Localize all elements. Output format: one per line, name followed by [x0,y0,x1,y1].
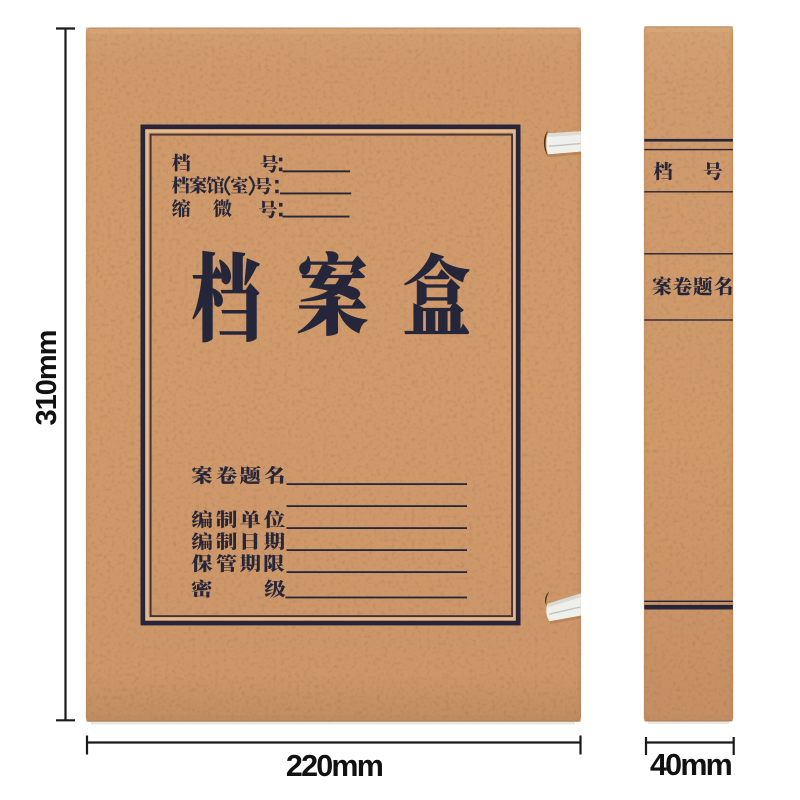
svg-text:40mm: 40mm [650,748,732,782]
svg-text:310mm: 310mm [31,331,63,426]
svg-text:220mm: 220mm [286,749,383,783]
